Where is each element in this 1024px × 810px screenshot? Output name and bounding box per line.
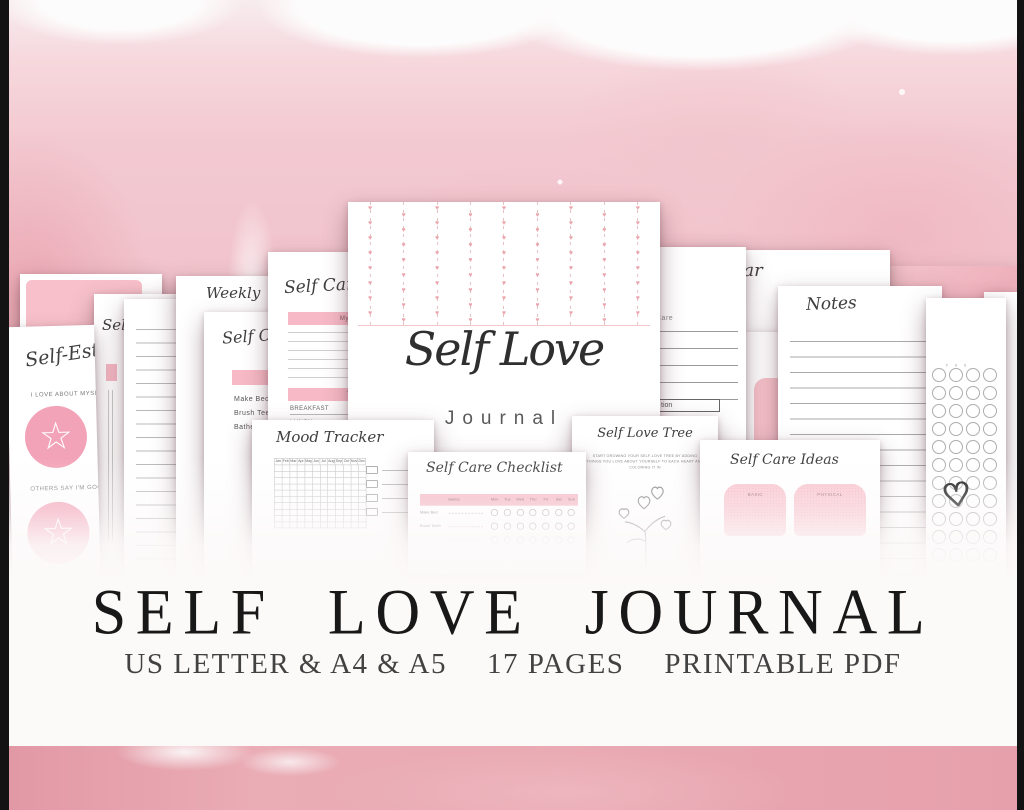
product-specs: US LETTER & A4 & A5 17 PAGES PRINTABLE P…: [9, 648, 1017, 681]
spec-pages: 17 PAGES: [487, 648, 624, 681]
heart-icon: ♥: [569, 217, 573, 230]
grid-cell: [983, 386, 997, 400]
heart-icon: ♥: [535, 254, 539, 267]
heart-icon: ♥: [602, 299, 606, 312]
heart-icon: ♥: [401, 224, 405, 237]
star-icon: ☆: [38, 417, 73, 456]
grid-cell: [949, 368, 963, 382]
heart-icon: ♥: [569, 292, 573, 305]
grid-cell: [966, 404, 980, 418]
heart-icon: ♥: [636, 307, 640, 320]
heart-icon: ♥: [535, 284, 539, 297]
heart-icon: ♥: [502, 217, 506, 230]
heart-icon: ♥: [602, 254, 606, 267]
heart-icon: ♥: [468, 209, 472, 222]
grid-cell: [983, 440, 997, 454]
heart-column: ♥♥♥♥♥♥♥♥: [401, 202, 405, 325]
heart-icon: ♥: [636, 247, 640, 260]
heart-icon: ♥: [401, 269, 405, 282]
heart-icon: ♥: [368, 307, 372, 320]
heart-icon: ♥: [401, 299, 405, 312]
page-title: Weekly: [206, 284, 260, 302]
cover-title: Self Love: [348, 322, 660, 376]
heart-icon: ♥: [401, 284, 405, 297]
grid-cell: [932, 404, 946, 418]
grid-cell: [932, 386, 946, 400]
heart-column: ♥♥♥♥♥♥♥♥: [502, 202, 506, 325]
heart-icon: ♥: [435, 232, 439, 245]
heart-icon: ♥: [636, 277, 640, 290]
heart-icon: ♥: [468, 254, 472, 267]
heart-icon: ♥: [368, 202, 372, 215]
heart-column: ♥♥♥♥♥♥♥♥: [435, 202, 439, 325]
heart-icon: ♥: [435, 217, 439, 230]
heart-icon: ♥: [569, 232, 573, 245]
heart-icon: ♥: [368, 277, 372, 290]
heart-icon: ♥: [435, 202, 439, 215]
heart-icon: ♥: [569, 277, 573, 290]
grid-cell: [932, 440, 946, 454]
heart-icon: ♥: [636, 217, 640, 230]
heart-icon: ♥: [569, 202, 573, 215]
product-title: SELF LOVE JOURNAL: [9, 576, 1017, 651]
heart-icon: ♥: [401, 209, 405, 222]
heart-icon: ♥: [569, 247, 573, 260]
heart-icon: ♥: [602, 269, 606, 282]
heart-column: ♥♥♥♥♥♥♥♥: [636, 202, 640, 325]
heart-icon: ♥: [636, 202, 640, 215]
grid-cell: [949, 440, 963, 454]
grid-cell: [949, 386, 963, 400]
heart-icon: ♥: [502, 247, 506, 260]
heart-icon: ♥: [401, 254, 405, 267]
grid-cell: [949, 422, 963, 436]
heart-icon: ♥: [502, 232, 506, 245]
spec-filetype: PRINTABLE PDF: [664, 648, 901, 681]
heart-icon: ♥: [435, 262, 439, 275]
heart-icon: ♥: [569, 262, 573, 275]
heart-icon: ♥: [535, 299, 539, 312]
grid-cell: [949, 404, 963, 418]
spec-formats: US LETTER & A4 & A5: [124, 648, 447, 681]
grid-cell: [966, 386, 980, 400]
heart-icon: ♥: [569, 307, 573, 320]
routine-item: Make Bed: [234, 396, 270, 403]
heart-icon: ♥: [468, 269, 472, 282]
heart-icon: ♥: [636, 232, 640, 245]
heart-icon: ♥: [435, 247, 439, 260]
page-title: Self Love Tree: [572, 426, 718, 441]
heart-icon: ♥: [368, 232, 372, 245]
heart-icon: ♥: [535, 239, 539, 252]
heart-icon: ♥: [535, 209, 539, 222]
heart-icon: ♥: [435, 307, 439, 320]
heart-icon: ♥: [502, 292, 506, 305]
prompt-label: I LOVE ABOUT MYSELF: [31, 391, 102, 399]
frame-edge-left: [0, 0, 9, 810]
heart-icon: ♥: [535, 224, 539, 237]
grid-cell: [983, 404, 997, 418]
heart-column: ♥♥♥♥♥♥♥♥: [468, 202, 472, 325]
page-title: Self-Esteem: [24, 333, 102, 372]
heart-icon: ♥: [401, 239, 405, 252]
grid-cell: [966, 440, 980, 454]
grid-cell: [932, 422, 946, 436]
box-label-fragment: tion: [661, 402, 672, 409]
heart-icon: ♥: [602, 284, 606, 297]
heart-icon: ♥: [602, 209, 606, 222]
heart-column: ♥♥♥♥♥♥♥♥: [368, 202, 372, 325]
heart-icon: ♥: [502, 202, 506, 215]
heart-icon: ♥: [636, 292, 640, 305]
heart-icon: ♥: [368, 292, 372, 305]
heart-icon: ♥: [368, 247, 372, 260]
heart-icon: ♥: [435, 277, 439, 290]
heart-icon: ♥: [636, 262, 640, 275]
watercolor-background-bottom: [0, 746, 1024, 810]
heart-icon: ♥: [502, 307, 506, 320]
heart-icon: ♥: [602, 239, 606, 252]
heart-column: ♥♥♥♥♥♥♥♥: [602, 202, 606, 325]
heart-icon: ♥: [368, 217, 372, 230]
frame-edge-right: [1017, 0, 1024, 810]
grid-cell: [966, 422, 980, 436]
grid-cell: [966, 368, 980, 382]
heart-pattern: ♥♥♥♥♥♥♥♥♥♥♥♥♥♥♥♥♥♥♥♥♥♥♥♥♥♥♥♥♥♥♥♥♥♥♥♥♥♥♥♥…: [358, 202, 650, 326]
grid-cell: [983, 368, 997, 382]
grid-cell: [932, 368, 946, 382]
heart-icon: ♥: [435, 292, 439, 305]
pink-bar-decoration: [106, 364, 117, 381]
grid-cell: [983, 422, 997, 436]
heart-icon: ♥: [468, 284, 472, 297]
heart-icon: ♥: [468, 239, 472, 252]
page-title: Mood Tracker: [276, 428, 383, 446]
product-listing-image: Self Weekly Self Care Make Bed Brush Tee…: [0, 0, 1024, 810]
page-title: Notes: [806, 293, 857, 315]
heart-icon: ♥: [502, 262, 506, 275]
heart-icon: ♥: [535, 269, 539, 282]
heart-column: ♥♥♥♥♥♥♥♥: [535, 202, 539, 325]
heart-icon: ♥: [368, 262, 372, 275]
heart-icon: ♥: [502, 277, 506, 290]
heart-icon: ♥: [602, 224, 606, 237]
heart-icon: ♥: [468, 224, 472, 237]
heart-column: ♥♥♥♥♥♥♥♥: [569, 202, 573, 325]
heart-icon: ♥: [468, 299, 472, 312]
